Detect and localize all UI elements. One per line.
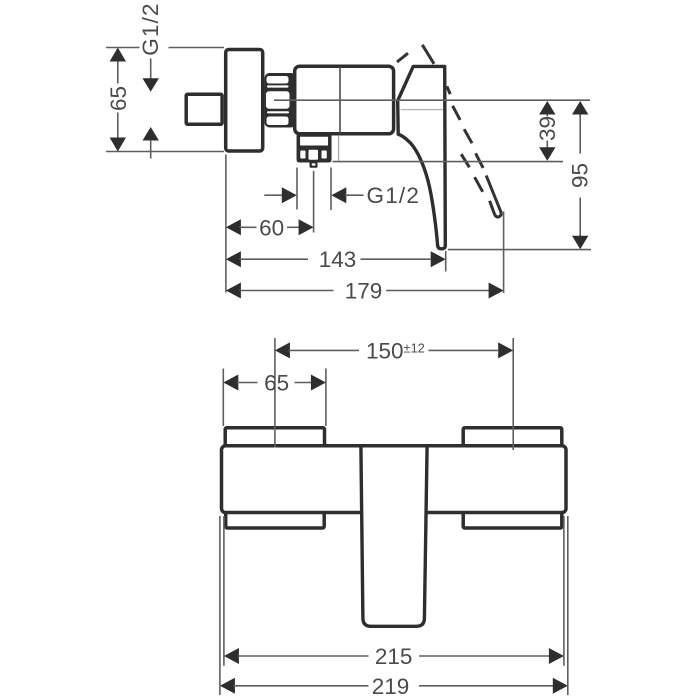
svg-text:G1/2: G1/2 bbox=[367, 183, 421, 208]
svg-text:219: 219 bbox=[372, 674, 410, 699]
svg-text:95: 95 bbox=[568, 163, 593, 188]
svg-text:143: 143 bbox=[319, 247, 357, 272]
svg-text:60: 60 bbox=[259, 215, 284, 240]
svg-text:G1/2: G1/2 bbox=[138, 2, 163, 56]
svg-text:65: 65 bbox=[264, 371, 289, 396]
svg-text:215: 215 bbox=[375, 644, 413, 669]
svg-text:39: 39 bbox=[535, 116, 560, 141]
svg-text:65: 65 bbox=[106, 86, 131, 111]
svg-text:179: 179 bbox=[345, 279, 383, 304]
